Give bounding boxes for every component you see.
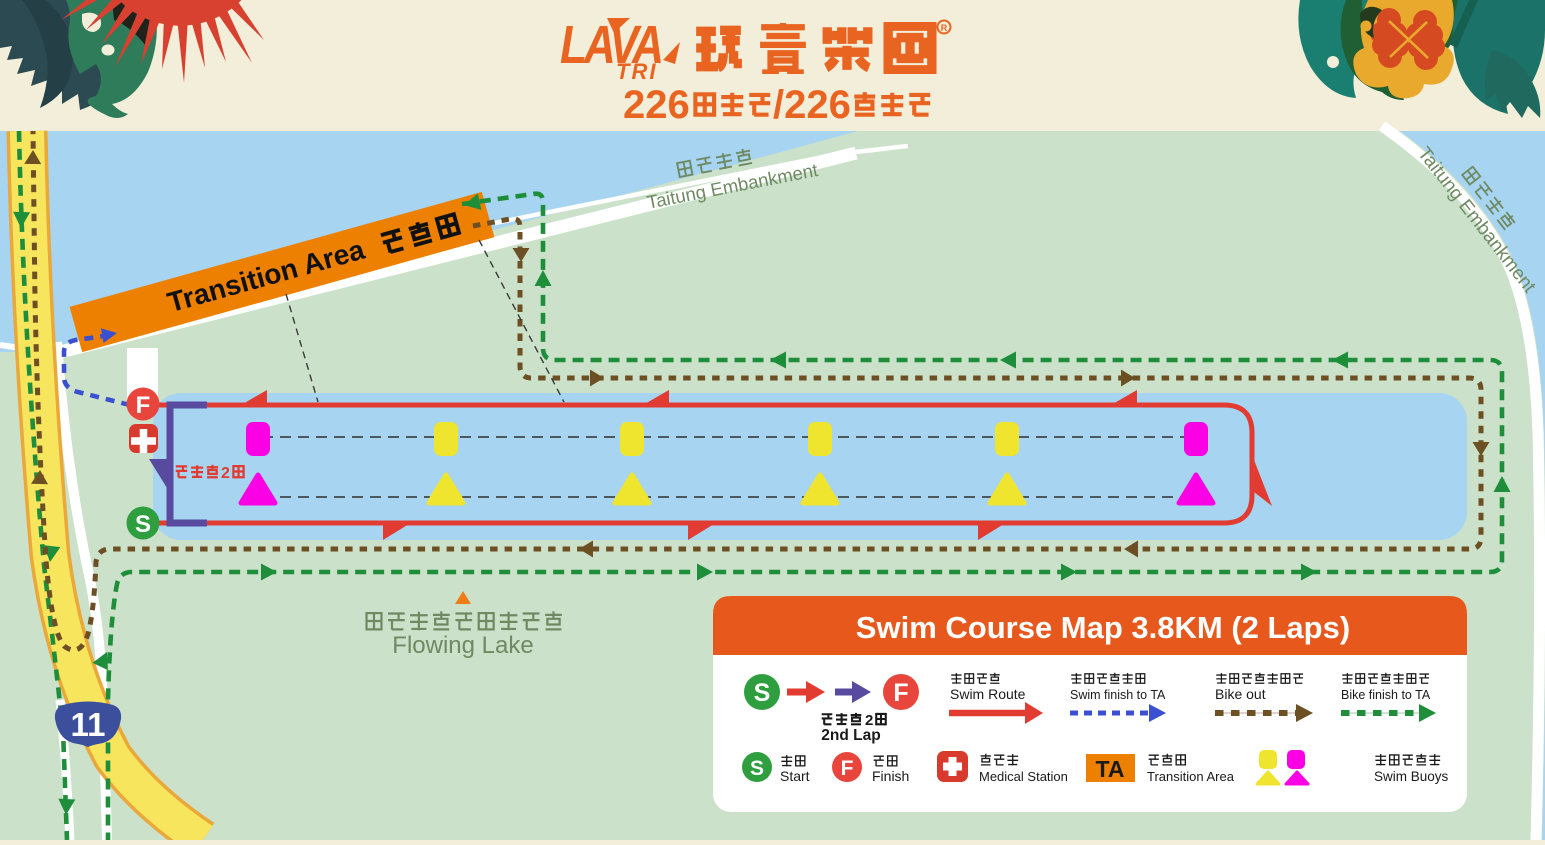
svg-text:Medical Station: Medical Station [979, 769, 1068, 784]
svg-text:2nd Lap: 2nd Lap [821, 727, 880, 744]
svg-text:Swim Route: Swim Route [950, 686, 1026, 702]
svg-text:11: 11 [71, 706, 106, 743]
svg-text:2: 2 [221, 465, 230, 482]
svg-text:S: S [754, 679, 771, 707]
svg-text:Bike finish to TA: Bike finish to TA [1341, 688, 1431, 702]
svg-text:Finish: Finish [872, 768, 909, 784]
svg-text:Transition Area: Transition Area [1147, 769, 1235, 784]
svg-text:F: F [893, 679, 908, 707]
svg-text:S: S [750, 757, 764, 780]
svg-text:F: F [841, 757, 854, 780]
svg-text:Flowing Lake: Flowing Lake [392, 632, 533, 659]
svg-text:S: S [135, 511, 151, 538]
svg-text:F: F [136, 392, 151, 419]
svg-text:226: 226 [623, 83, 690, 127]
svg-text:Swim Buoys: Swim Buoys [1374, 769, 1449, 784]
svg-text:TA: TA [1096, 756, 1125, 782]
svg-text:Start: Start [780, 768, 810, 784]
svg-text:/226: /226 [773, 83, 851, 127]
svg-text:Swim Course Map 3.8KM (2 Laps): Swim Course Map 3.8KM (2 Laps) [856, 610, 1350, 645]
svg-text:R: R [941, 23, 948, 33]
svg-text:TRI: TRI [616, 59, 657, 84]
svg-text:Bike out: Bike out [1215, 686, 1266, 702]
svg-text:Swim finish to TA: Swim finish to TA [1070, 688, 1166, 702]
